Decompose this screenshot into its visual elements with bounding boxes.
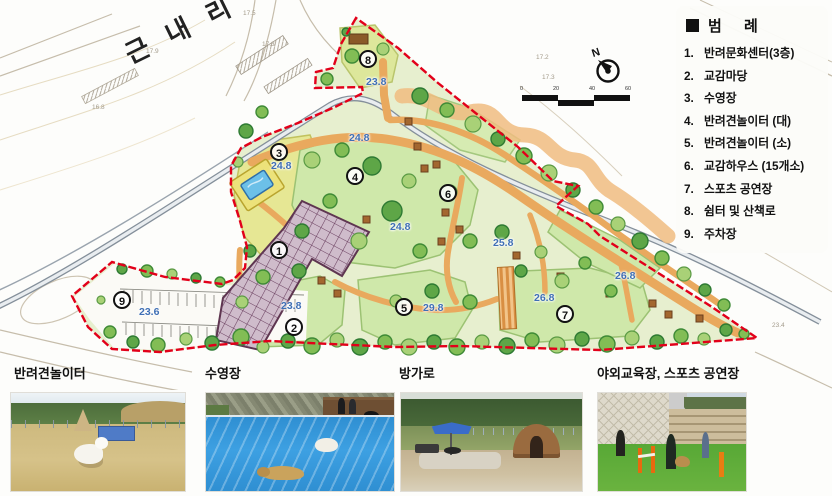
legend-item-3: 3.수영장 [684, 87, 822, 110]
scale-bar [522, 95, 630, 106]
marker-8-shelter: 8 [359, 50, 377, 68]
spot-height: 17.3 [262, 41, 275, 48]
agility-jump-post [651, 446, 655, 473]
agility-post [719, 452, 723, 477]
legend-item-2: 2.교감마당 [684, 65, 822, 88]
photo-bungalow [400, 392, 583, 492]
treeline [401, 399, 582, 428]
person [338, 398, 346, 414]
spot-height: 17.5 [243, 10, 256, 17]
dark-dog [444, 447, 460, 454]
elevation-label: 24.8 [390, 221, 410, 233]
elevation-label: 24.8 [271, 160, 291, 172]
paved-patio [419, 452, 500, 470]
legend-title-text: 범 례 [708, 15, 767, 36]
photo-training-field [597, 392, 747, 492]
person [702, 432, 709, 457]
legend-bullet-icon [686, 19, 699, 32]
elevation-label: 26.8 [534, 292, 554, 304]
photo-swimming-pool [205, 392, 395, 492]
legend-title: 범 례 [686, 15, 822, 36]
legend-item-4: 4.반려견놀이터 (대) [684, 110, 822, 133]
marker-5-playground-small: 5 [395, 298, 413, 316]
spot-height: 17.9 [146, 48, 159, 55]
legend-panel: 범 례 1.반려문화센터(3층) 2.교감마당 3.수영장 4.반려견놀이터 (… [676, 6, 828, 253]
legend-item-7: 7.스포츠 공연장 [684, 178, 822, 201]
water-ripples [206, 417, 394, 491]
photo-caption-bungalow: 방가로 [399, 363, 435, 382]
spot-height: 17.3 [542, 74, 555, 81]
agility-jump-post [638, 448, 642, 473]
spot-height: 23.4 [772, 322, 785, 329]
photo-caption-training-field: 야외교육장, 스포츠 공연장 [597, 363, 739, 382]
marker-1-culture-center: 1 [270, 241, 288, 259]
training-dog [675, 456, 690, 468]
elevation-label: 23.6 [139, 306, 159, 318]
elevation-label: 24.8 [349, 132, 369, 144]
elevation-label: 23.8 [366, 76, 386, 88]
marker-3-pool: 3 [270, 143, 288, 161]
marker-2-yard: 2 [285, 318, 303, 336]
lattice-pattern [598, 393, 669, 450]
elevation-label: 23.8 [281, 300, 301, 312]
person [616, 430, 625, 455]
legend-item-6: 6.교감하우스 (15개소) [684, 155, 822, 178]
white-dog-head [95, 437, 109, 449]
performance-stands [497, 267, 516, 330]
spot-height: 16.8 [92, 104, 105, 111]
marker-4-playground-large: 4 [346, 167, 364, 185]
photo-dog-playground [10, 392, 186, 492]
spot-height: 17.2 [536, 54, 549, 61]
north-arrow-icon [598, 60, 619, 82]
hill [121, 401, 186, 423]
site-plan-page: .t1{fill:#82bd55;stroke:#3e8a36;stroke-w… [0, 0, 832, 496]
person [349, 399, 357, 414]
photo-caption-dog-playground: 반려견놀이터 [14, 363, 86, 382]
white-poodle [315, 438, 338, 452]
scale-tick-40: 40 [589, 86, 595, 92]
legend-item-9: 9.주차장 [684, 223, 822, 246]
legend-item-8: 8.쉼터 및 산책로 [684, 200, 822, 223]
legend-item-1: 1.반려문화센터(3층) [684, 42, 822, 65]
legend-item-5: 5.반려견놀이터 (소) [684, 132, 822, 155]
elevation-label: 29.8 [423, 302, 443, 314]
elevation-label: 26.8 [615, 270, 635, 282]
scale-tick-60: 60 [625, 86, 631, 92]
scale-tick-20: 20 [553, 86, 559, 92]
marker-6-houses: 6 [439, 184, 457, 202]
photo-caption-pool: 수영장 [205, 363, 241, 382]
marker-9-parking: 9 [113, 291, 131, 309]
bungalow-door [530, 436, 543, 458]
scale-tick-0: 0 [520, 86, 523, 92]
elevation-label: 25.8 [493, 237, 513, 249]
bench [415, 444, 439, 453]
marker-7-sports: 7 [556, 305, 574, 323]
teepee [74, 409, 92, 431]
